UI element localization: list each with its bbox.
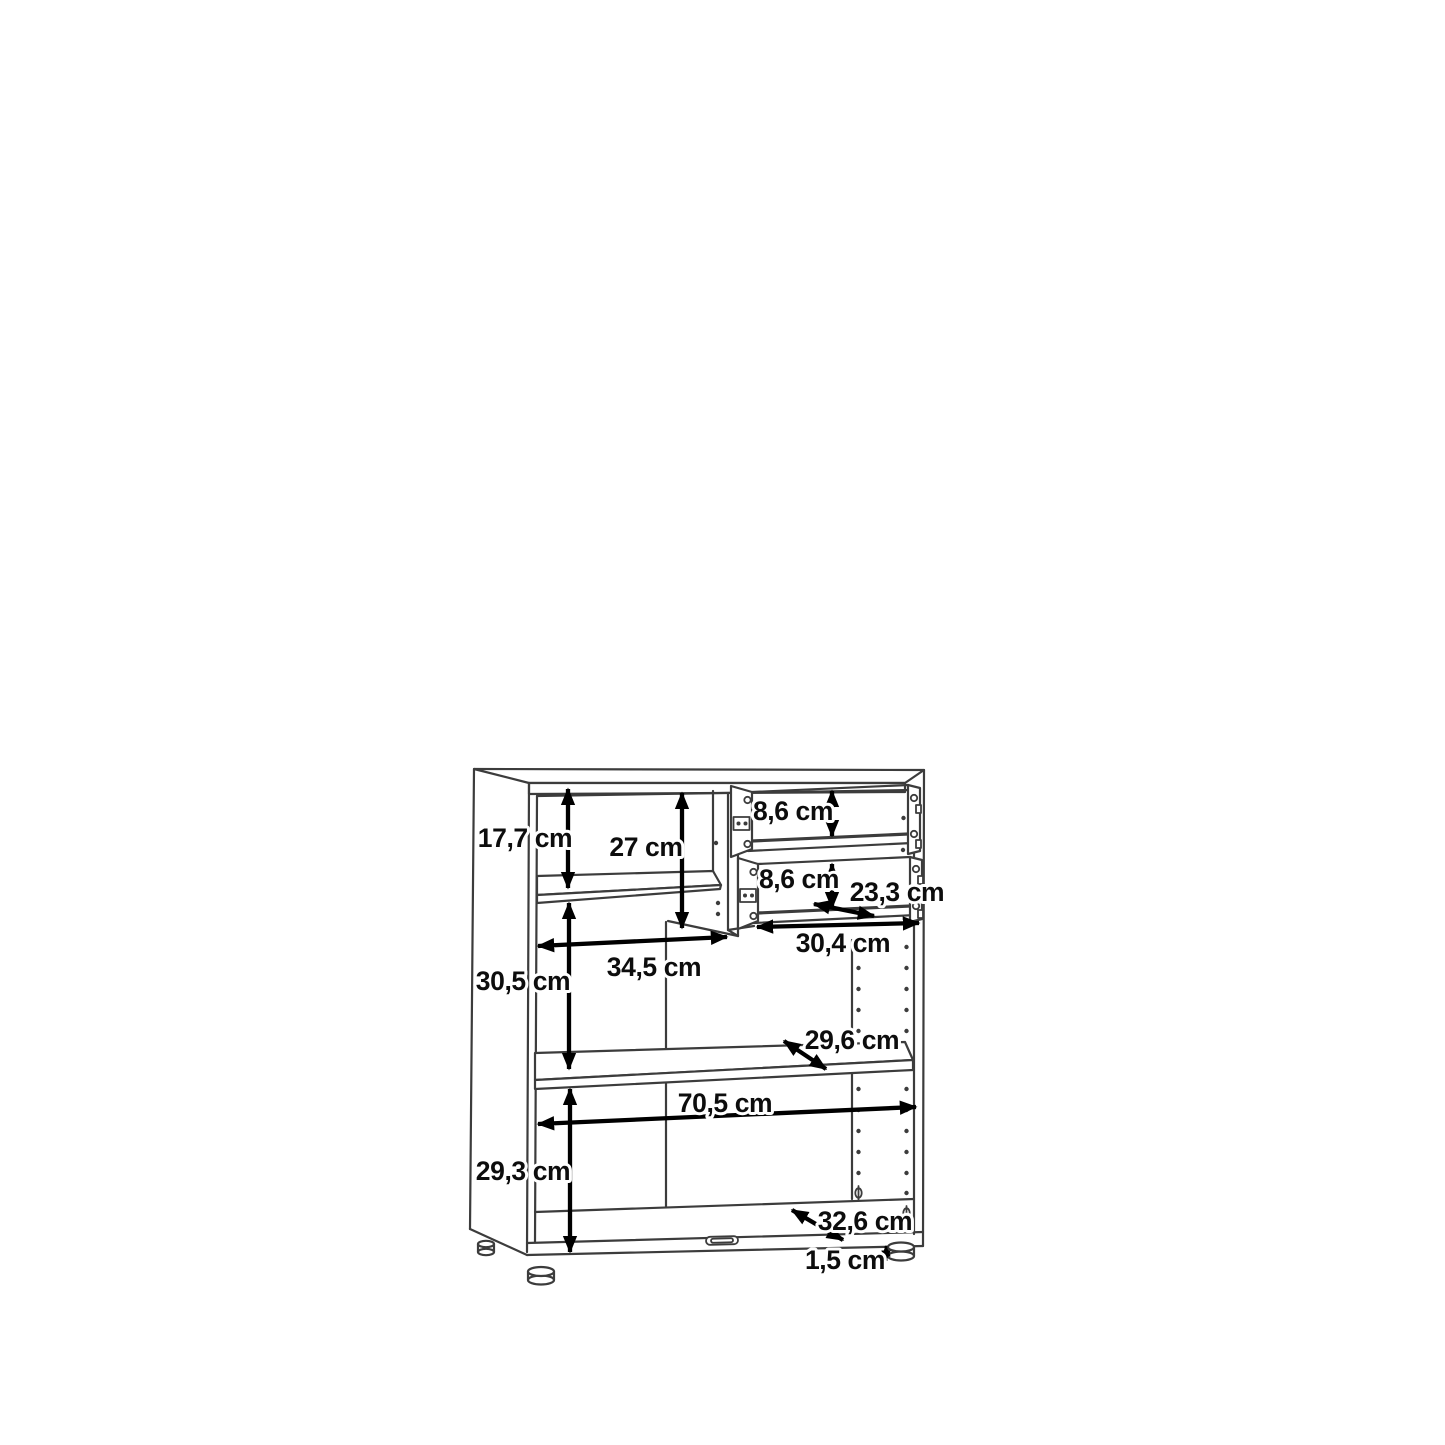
drawer-screw — [744, 797, 750, 803]
slide-screw — [737, 822, 741, 826]
pin-hole-dot — [904, 987, 908, 991]
pin-hole-dot — [856, 1150, 860, 1154]
pin-hole-dot — [901, 848, 905, 852]
right-outer-edge — [923, 770, 924, 1246]
dimension-30-4: 30,4 cm — [757, 923, 919, 958]
dimension-8-6-lower: 8,6 cm — [759, 864, 839, 908]
dimension-label: 23,3 cm — [850, 877, 944, 907]
cabinet-dimension-diagram: 17,7 cm 27 cm 8,6 cm 8,6 cm 23,3 cm 30,4… — [0, 0, 1445, 1445]
pin-hole-dot — [716, 901, 720, 905]
dimension-70-5: 70,5 cm — [538, 1088, 916, 1124]
drawer-lower-top-edge — [758, 857, 910, 864]
dimension-label: 17,7 cm — [478, 823, 572, 853]
dimension-arrow — [757, 923, 919, 927]
dimension-label: 34,5 cm — [607, 952, 701, 982]
drawer-screw — [911, 795, 917, 801]
foot-front-right — [888, 1252, 914, 1261]
dimension-label: 30,4 cm — [796, 928, 890, 958]
dimension-8-6-upper: 8,6 cm — [753, 791, 833, 836]
drawer-upper-cap-notch — [916, 840, 921, 848]
drawer-screw — [911, 831, 917, 837]
dimensions: 17,7 cm 27 cm 8,6 cm 8,6 cm 23,3 cm 30,4… — [476, 789, 944, 1275]
foot-back-left — [478, 1249, 494, 1255]
top-panel-surface — [474, 769, 924, 783]
dimension-label: 29,6 cm — [805, 1025, 899, 1055]
center-partition — [668, 791, 738, 936]
dimension-29-3: 29,3 cm — [476, 1089, 570, 1252]
pin-hole-dot — [904, 1087, 908, 1091]
dimension-label: 1,5 cm — [805, 1245, 885, 1275]
pin-hole-dot — [904, 1191, 908, 1195]
dimension-1-5: 1,5 cm — [805, 1245, 886, 1275]
pin-hole-dot — [714, 841, 718, 845]
dimension-label: 30,5 cm — [476, 966, 570, 996]
pin-hole-dot — [856, 1171, 860, 1175]
pin-hole-dot — [716, 912, 720, 916]
drawer-lower-cap-notch — [918, 910, 923, 918]
pin-hole-dot — [904, 1129, 908, 1133]
slide-screw — [743, 894, 747, 898]
dimension-27: 27 cm — [609, 793, 682, 928]
foot-front-left — [528, 1267, 554, 1276]
dimension-17-7: 17,7 cm — [478, 789, 572, 888]
drawer-screw — [913, 866, 919, 872]
foot-back-left — [478, 1241, 494, 1247]
left-outer-edge — [470, 769, 474, 1229]
slide-screw — [744, 822, 748, 826]
pin-hole-dot — [856, 966, 860, 970]
drawer-screw — [744, 841, 750, 847]
foot-front-right — [888, 1243, 914, 1252]
dimension-label: 29,3 cm — [476, 1156, 570, 1186]
pin-hole-dot — [856, 1129, 860, 1133]
pin-hole-dot — [856, 987, 860, 991]
pin-hole-dot — [856, 1008, 860, 1012]
drawer-screw — [750, 913, 756, 919]
plinth-grommet — [706, 1236, 738, 1245]
pin-hole-dot — [856, 1087, 860, 1091]
dimension-30-5: 30,5 cm — [476, 903, 570, 1069]
dimension-label: 70,5 cm — [678, 1088, 772, 1118]
drawer-upper-cap-notch — [916, 805, 921, 813]
pin-hole-dot — [904, 966, 908, 970]
slide-screw — [750, 894, 754, 898]
dimension-label: 32,6 cm — [818, 1206, 912, 1236]
plinth-grommet — [711, 1238, 733, 1243]
pin-hole-dot — [904, 945, 908, 949]
dimension-label: 27 cm — [609, 832, 682, 862]
pin-hole-dot — [904, 1150, 908, 1154]
dimension-label: 8,6 cm — [759, 864, 839, 894]
dimension-drawing-canvas: 17,7 cm 27 cm 8,6 cm 8,6 cm 23,3 cm 30,4… — [0, 0, 1445, 1445]
pin-hole-dot — [904, 1008, 908, 1012]
drawer-screw — [750, 869, 756, 875]
dimension-label: 8,6 cm — [753, 796, 833, 826]
drawer-upper-bottom-front-edge — [748, 843, 912, 851]
dimension-arrow — [538, 937, 727, 946]
pin-hole-dot — [904, 1171, 908, 1175]
pin-hole-dot — [901, 816, 905, 820]
pin-hole-dot — [904, 1029, 908, 1033]
small-shelf — [537, 871, 721, 903]
